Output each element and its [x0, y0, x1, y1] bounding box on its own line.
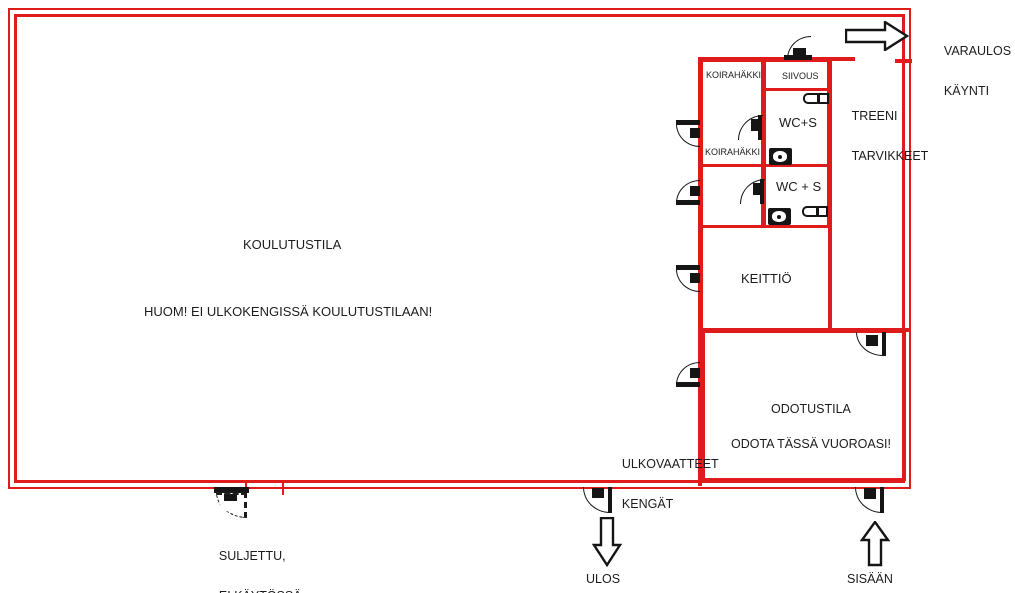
note-shoes-warning: HUOM! EI ULKOKENGISSÄ KOULUTUSTILAAN!: [144, 304, 432, 320]
wc-basin-icon-upper: [769, 148, 792, 165]
entrance-label-sisaan: SISÄÄN: [847, 569, 893, 589]
room-label-koirahakki-bottom: KOIRAHÄKKI: [705, 147, 760, 158]
room-label-wc-lower: WC + S: [776, 179, 821, 195]
room-label-odotustila: ODOTUSTILA: [771, 399, 851, 419]
room-label-koulutustila: KOULUTUSTILA: [243, 237, 341, 253]
wc-basin-icon-lower: [768, 208, 791, 225]
wall-top-stub: [895, 59, 912, 63]
entrance-arrow-icon: [860, 521, 890, 567]
exit-label-varaulos: VARAULOS KÄYNTI: [930, 21, 1011, 121]
note-outerwear: ULKOVAATTEET KENGÄT: [608, 434, 719, 534]
exit-label-ulos: ULOS: [586, 569, 620, 589]
note-wait-here: ODOTA TÄSSÄ VUOROASI!: [731, 434, 891, 454]
room-label-koirahakki-top: KOIRAHÄKKI: [706, 70, 761, 81]
note-closed: SULJETTU, EI KÄYTÖSSÄ: [205, 526, 302, 593]
wc-toilet-icon-lower: [802, 206, 829, 222]
room-label-keittio: KEITTIÖ: [741, 271, 792, 287]
floor-plan: KOULUTUSTILA HUOM! EI ULKOKENGISSÄ KOULU…: [0, 0, 1015, 593]
room-label-siivous: SIIVOUS: [782, 71, 819, 82]
wc-toilet-icon-upper: [803, 93, 830, 109]
emergency-exit-arrow-icon: [845, 21, 909, 51]
room-label-treeni-tarvikkeet: TREENI TARVIKKEET: [838, 86, 928, 186]
room-label-wc-upper: WC+S: [779, 115, 817, 131]
wall-tick: [282, 483, 284, 495]
